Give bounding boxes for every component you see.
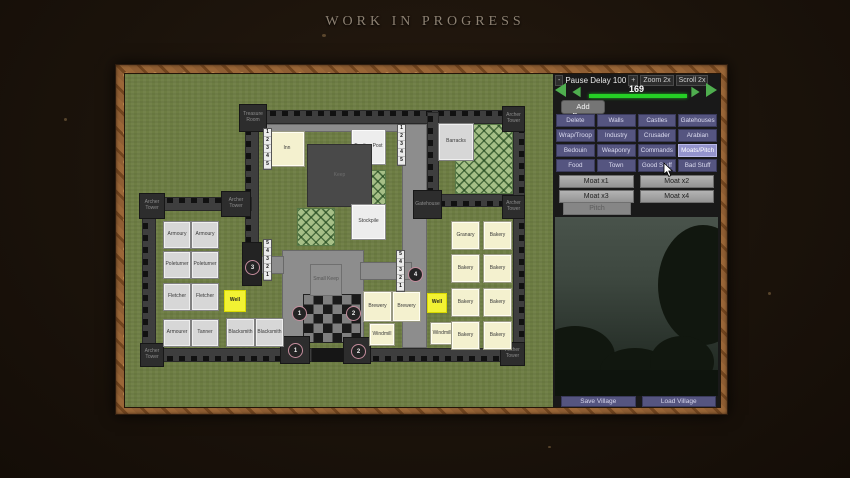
category-moats-pitch[interactable]: Moats/Pitch bbox=[678, 144, 717, 157]
dust-speck bbox=[64, 118, 67, 121]
tower-treasure-room[interactable]: Treasure Room bbox=[239, 104, 267, 132]
building-brewery[interactable]: Brewery bbox=[393, 292, 420, 321]
category-bad-stuff[interactable]: Bad Stuff bbox=[678, 159, 717, 172]
gate-badge[interactable]: 1 bbox=[292, 306, 307, 321]
category-button-grid: DeleteWallsCastlesGatehousesWrap/TroopIn… bbox=[556, 114, 717, 172]
gate-badge[interactable]: 2 bbox=[346, 306, 361, 321]
building-inn[interactable]: Inn bbox=[270, 132, 304, 166]
category-delete[interactable]: Delete bbox=[556, 114, 595, 127]
moat-x1-button[interactable]: Moat x1 bbox=[559, 175, 634, 188]
wall-segment bbox=[245, 110, 525, 124]
panel-footer: Save VillageLoad Village bbox=[561, 396, 716, 407]
page-title: WORK IN PROGRESS bbox=[0, 14, 850, 30]
building-armoury[interactable]: Armoury bbox=[192, 222, 218, 248]
category-castles[interactable]: Castles bbox=[638, 114, 677, 127]
building-bakery[interactable]: Bakery bbox=[452, 322, 479, 349]
planner-window-frame: Treasure RoomArcher TowerArcher TowerGat… bbox=[115, 64, 728, 415]
building-bakery[interactable]: Bakery bbox=[484, 322, 511, 349]
building-bakery[interactable]: Bakery bbox=[484, 222, 511, 249]
pitch-button[interactable]: Pitch bbox=[563, 202, 631, 215]
tower-archer-tower[interactable]: Archer Tower bbox=[139, 193, 165, 219]
category-walls[interactable]: Walls bbox=[597, 114, 636, 127]
step-back-icon[interactable] bbox=[572, 87, 580, 98]
building-bakery[interactable]: Bakery bbox=[484, 255, 511, 282]
road-segment bbox=[360, 262, 412, 280]
building-armoury[interactable]: Armoury bbox=[164, 222, 190, 248]
gate-badge[interactable]: 1 bbox=[288, 343, 303, 358]
wall-segment bbox=[513, 110, 525, 362]
moat-button-grid: Moat x1Moat x2Moat x3Moat x4 bbox=[559, 175, 714, 203]
planner-content: Treasure RoomArcher TowerArcher TowerGat… bbox=[125, 74, 720, 407]
save-village-button[interactable]: Save Village bbox=[561, 396, 636, 407]
building-small-keep[interactable]: Small Keep bbox=[310, 264, 342, 296]
dust-speck bbox=[322, 34, 326, 37]
category-gatehouses[interactable]: Gatehouses bbox=[678, 114, 717, 127]
dust-speck bbox=[548, 446, 551, 448]
tower-archer-tower[interactable]: Archer Tower bbox=[502, 195, 525, 219]
moat-x2-button[interactable]: Moat x2 bbox=[640, 175, 715, 188]
category-arabian[interactable]: Arabian bbox=[678, 129, 717, 142]
moat-x4-button[interactable]: Moat x4 bbox=[640, 190, 715, 203]
castle-map[interactable]: Treasure RoomArcher TowerArcher TowerGat… bbox=[125, 74, 553, 407]
moat-number-strip: 54321 bbox=[397, 251, 404, 291]
gate-badge[interactable]: 2 bbox=[351, 344, 366, 359]
category-bedouin[interactable]: Bedouin bbox=[556, 144, 595, 157]
building-poleturner[interactable]: Poleturner bbox=[164, 252, 190, 278]
building-windmill[interactable]: Windmill bbox=[370, 324, 394, 345]
background-scenery bbox=[555, 217, 718, 396]
wall-segment bbox=[142, 197, 156, 362]
tower-gatehouse[interactable]: Gatehouse bbox=[413, 190, 442, 219]
add-pause-button[interactable]: Add Pause bbox=[561, 100, 605, 114]
building-well[interactable]: Well bbox=[224, 290, 246, 312]
category-crusader[interactable]: Crusader bbox=[638, 129, 677, 142]
building-fletcher[interactable]: Fletcher bbox=[192, 284, 218, 310]
building-fletcher[interactable]: Fletcher bbox=[164, 284, 190, 310]
step-forward-icon[interactable] bbox=[691, 87, 699, 98]
tree-silhouette bbox=[658, 225, 718, 345]
moat-number-strip: 54321 bbox=[264, 240, 271, 280]
tower-archer-tower[interactable]: Archer Tower bbox=[140, 343, 164, 367]
mouse-cursor bbox=[663, 162, 675, 178]
building-blacksmith[interactable]: Blacksmith bbox=[227, 319, 254, 346]
building-tanner[interactable]: Tanner bbox=[192, 320, 218, 346]
moat-number-strip: 12345 bbox=[264, 129, 271, 169]
moat-number-strip: 12345 bbox=[398, 125, 405, 165]
building-poleturner[interactable]: Poleturner bbox=[192, 252, 218, 278]
building-bakery[interactable]: Bakery bbox=[452, 255, 479, 282]
building-brewery[interactable]: Brewery bbox=[364, 292, 391, 321]
step-forward-fast-icon[interactable] bbox=[706, 83, 717, 97]
category-industry[interactable]: Industry bbox=[597, 129, 636, 142]
category-weaponry[interactable]: Weaponry bbox=[597, 144, 636, 157]
building-blacksmith[interactable]: Blacksmith bbox=[256, 319, 283, 346]
load-village-button[interactable]: Load Village bbox=[642, 396, 717, 407]
tower-archer-tower[interactable]: Archer Tower bbox=[221, 191, 251, 217]
building-barracks[interactable]: Barracks bbox=[439, 124, 473, 160]
category-wrap-troop[interactable]: Wrap/Troop bbox=[556, 129, 595, 142]
building-windmill[interactable]: Windmill bbox=[431, 323, 453, 344]
building-bakery[interactable]: Bakery bbox=[484, 289, 511, 316]
category-town[interactable]: Town bbox=[597, 159, 636, 172]
building-keep[interactable]: Keep bbox=[307, 144, 372, 207]
building-bakery[interactable]: Bakery bbox=[452, 289, 479, 316]
building-well[interactable]: Well bbox=[427, 293, 447, 313]
scenery-ground bbox=[555, 370, 718, 396]
building-stockpile[interactable]: Stockpile bbox=[352, 205, 385, 239]
farm-plot[interactable] bbox=[297, 208, 335, 246]
dust-speck bbox=[768, 292, 771, 295]
tower-archer-tower[interactable]: Archer Tower bbox=[502, 106, 525, 132]
control-panel: - Pause Delay 100 + Zoom 2x Scroll 2x 16… bbox=[553, 74, 720, 407]
gate-badge[interactable]: 3 bbox=[245, 260, 260, 275]
step-back-fast-icon[interactable] bbox=[555, 83, 566, 97]
building-granary[interactable]: Granary bbox=[452, 222, 479, 249]
category-food[interactable]: Food bbox=[556, 159, 595, 172]
category-commands[interactable]: Commands bbox=[638, 144, 677, 157]
gate-badge[interactable]: 4 bbox=[408, 267, 423, 282]
timeline-progress-bar[interactable] bbox=[589, 94, 687, 98]
building-armourer[interactable]: Armourer bbox=[164, 320, 190, 346]
